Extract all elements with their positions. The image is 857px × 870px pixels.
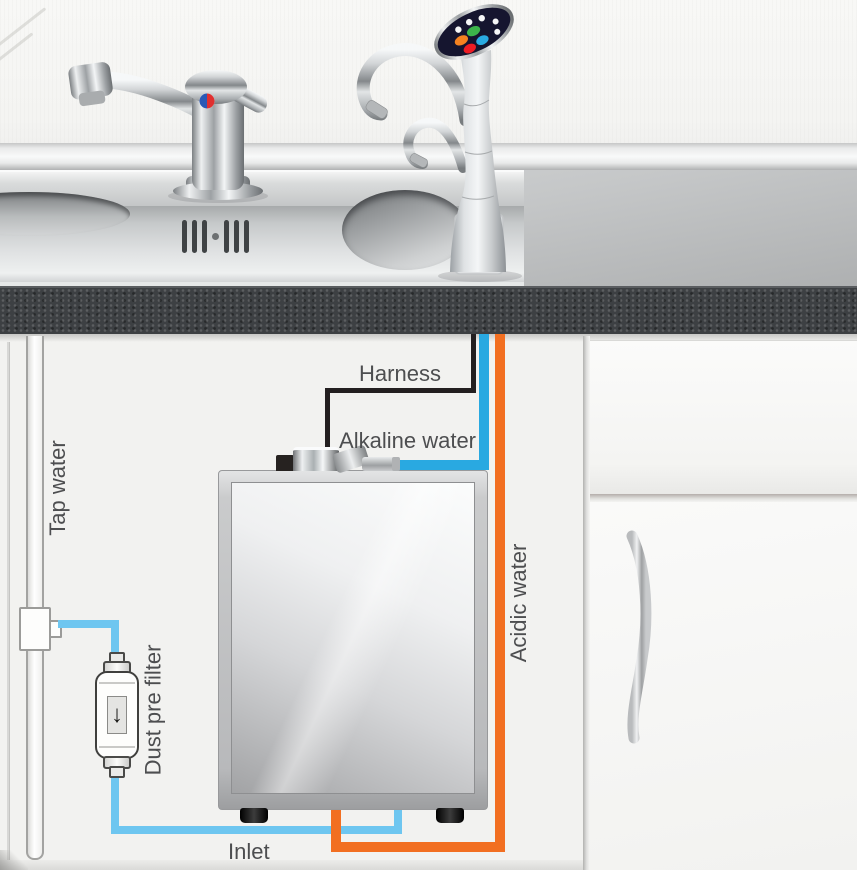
alkaline-water-tube (396, 460, 489, 470)
unit-foot (436, 808, 464, 823)
under-sink-ionizer-installation-diagram: ↓ Harness Alkaline water Acidic water Ta… (0, 0, 857, 870)
tap-water-pipe (26, 336, 44, 860)
acidic-water-label: Acidic water (508, 538, 530, 668)
faucet-spout-head (67, 61, 114, 107)
cabinet-divider (583, 336, 590, 870)
alkaline-water-label: Alkaline water (280, 430, 476, 452)
dust-pre-filter-label: Dust pre filter (143, 638, 165, 783)
filter-seam (99, 746, 135, 748)
cabinet-door-handle (611, 524, 657, 750)
filter-seam (99, 682, 135, 684)
faucet-top-cap (185, 70, 247, 104)
alkaline-water-tube (479, 334, 489, 470)
inlet-label: Inlet (228, 841, 328, 863)
pipe-tee-valve (19, 607, 51, 651)
countertop-edge (0, 286, 857, 334)
acidic-water-tube (495, 334, 505, 852)
ionizer-faucet (363, 0, 520, 274)
harness-cable (325, 388, 476, 393)
cabinet-side-panel-edge (7, 342, 10, 870)
tap-water-label: Tap water (47, 435, 69, 541)
faucets-illustration (0, 0, 857, 300)
inlet-tube (111, 826, 402, 834)
inlet-tube (58, 620, 116, 628)
unit-foot (240, 808, 268, 823)
filter-bottom-stem (109, 766, 125, 778)
harness-label: Harness (320, 363, 480, 385)
down-arrow-icon: ↓ (111, 703, 123, 727)
drawer-door-groove (590, 494, 857, 502)
corner-shadow (0, 850, 28, 870)
cabinet-drawer-front (590, 340, 857, 494)
inlet-tube (111, 771, 119, 831)
fitting-cap (392, 457, 400, 471)
acidic-water-tube (331, 842, 505, 852)
harness-connector (276, 455, 294, 471)
kitchen-mixer-faucet (67, 61, 269, 200)
ionizer-unit-front-panel (231, 482, 475, 794)
filter-flow-arrow: ↓ (107, 696, 127, 734)
